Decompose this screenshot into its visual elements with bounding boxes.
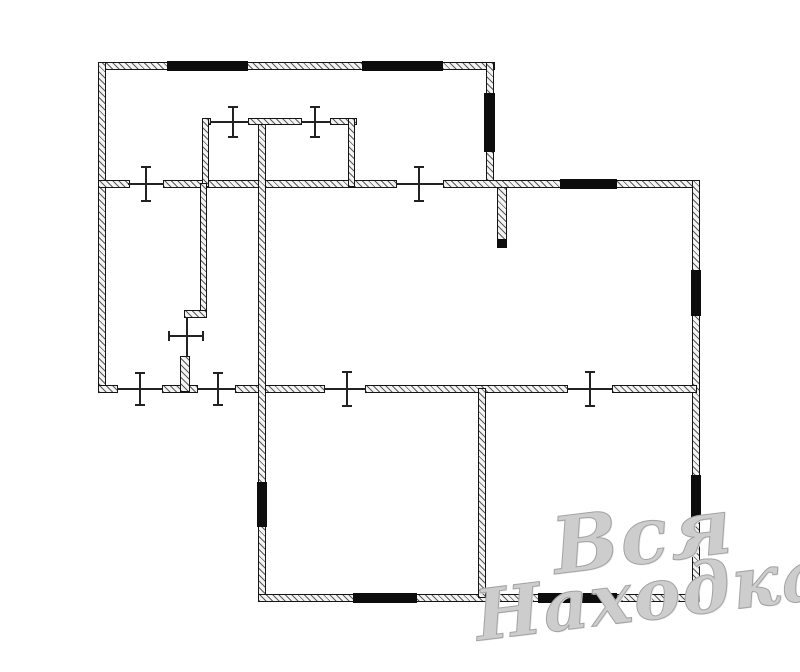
door-tick-mid-right <box>418 167 420 201</box>
door-opening-closet-1 <box>210 121 249 123</box>
window-upper-right-wall <box>484 93 495 152</box>
door-opening-closet-2 <box>301 121 331 123</box>
door-opening-lowermid-3 <box>324 388 366 390</box>
door-tick-lowermid-1 <box>139 373 141 405</box>
wall-closet-left <box>202 118 209 187</box>
wall-mid-horizontal-a <box>98 180 130 188</box>
door-tick-lowermid-4-cap-b <box>585 405 595 407</box>
window-left-lower-wall <box>257 482 267 527</box>
door-tick-lowermid-3-cap-b <box>342 405 352 407</box>
door-tick-closet-1-cap-a <box>228 106 238 108</box>
door-tick-bathroom <box>169 335 203 337</box>
door-tick-closet-2-cap-a <box>310 106 320 108</box>
wall-bottom-rooms-divider <box>478 388 486 598</box>
door-tick-bathroom-cap-b <box>202 331 204 341</box>
window-mid-wall-right <box>560 179 617 189</box>
door-tick-closet-1 <box>232 107 234 137</box>
wall-bathroom-stub <box>180 356 190 392</box>
window-bottom-left <box>353 593 417 603</box>
door-tick-bathroom-cap-a <box>168 331 170 341</box>
wall-lowermid-horizontal-c <box>235 385 325 393</box>
window-right-wall-lower <box>691 475 701 518</box>
door-tick-lowermid-1-cap-b <box>135 404 145 406</box>
door-tick-lowermid-3-cap-a <box>342 371 352 373</box>
window-bottom-right <box>538 593 617 603</box>
door-tick-mid-left-cap-a <box>141 166 151 168</box>
window-right-wall-upper <box>691 270 701 316</box>
door-tick-mid-right-cap-a <box>414 166 424 168</box>
wall-closet-top-b <box>248 118 302 125</box>
wall-bathroom-vertical <box>200 183 207 313</box>
wall-left-lower-exterior <box>258 118 266 602</box>
door-tick-lowermid-2 <box>217 373 219 405</box>
wall-lowermid-horizontal-a <box>98 385 118 393</box>
wall-left-exterior <box>98 62 106 392</box>
window-top-right <box>362 61 443 71</box>
wall-hall-stub-cap <box>497 239 507 248</box>
door-tick-lowermid-1-cap-a <box>135 372 145 374</box>
door-tick-mid-left-cap-b <box>141 200 151 202</box>
door-tick-lowermid-4-cap-a <box>585 371 595 373</box>
floorplan-canvas: Вся Находка <box>0 0 800 672</box>
door-tick-lowermid-3 <box>346 372 348 406</box>
wall-closet-right <box>348 118 355 187</box>
wall-mid-horizontal-b <box>163 180 397 188</box>
wall-hall-stub <box>497 187 507 247</box>
wall-lowermid-horizontal-d <box>365 385 568 393</box>
door-tick-closet-1-cap-b <box>228 136 238 138</box>
door-tick-mid-left <box>145 167 147 201</box>
wall-lowermid-horizontal-e <box>612 385 697 393</box>
door-tick-lowermid-4 <box>589 372 591 406</box>
window-top-left <box>167 61 248 71</box>
door-opening-mid-right <box>396 183 444 185</box>
door-tick-closet-2-cap-b <box>310 136 320 138</box>
door-tick-closet-2 <box>314 107 316 137</box>
door-tick-mid-right-cap-b <box>414 200 424 202</box>
door-tick-lowermid-2-cap-b <box>213 404 223 406</box>
watermark-line1: Вся <box>548 487 738 587</box>
door-opening-bathroom <box>186 317 188 357</box>
door-tick-lowermid-2-cap-a <box>213 372 223 374</box>
